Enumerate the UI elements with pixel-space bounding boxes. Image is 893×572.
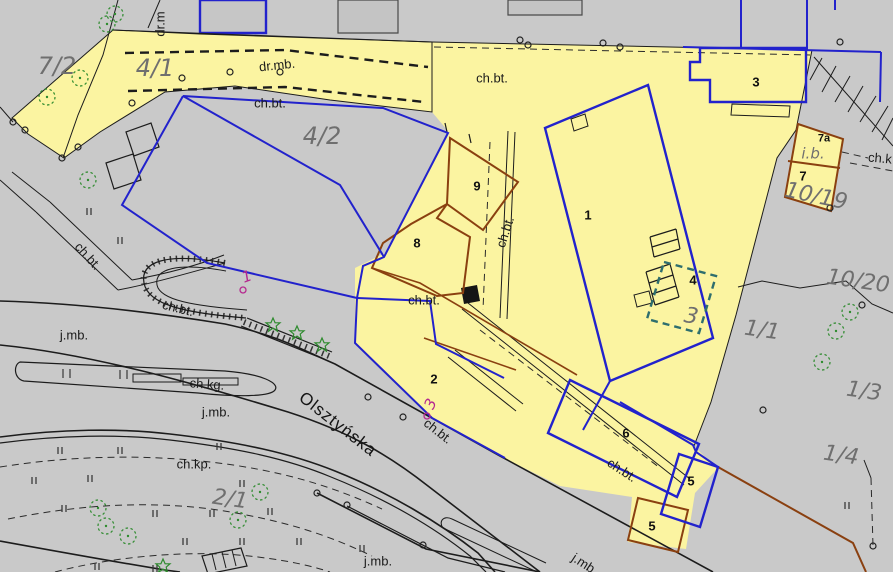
map-drawing	[0, 0, 893, 572]
map-canvas[interactable]: 7/24/14/210/1910/201/11/31/42/13i.b.1234…	[0, 0, 893, 572]
